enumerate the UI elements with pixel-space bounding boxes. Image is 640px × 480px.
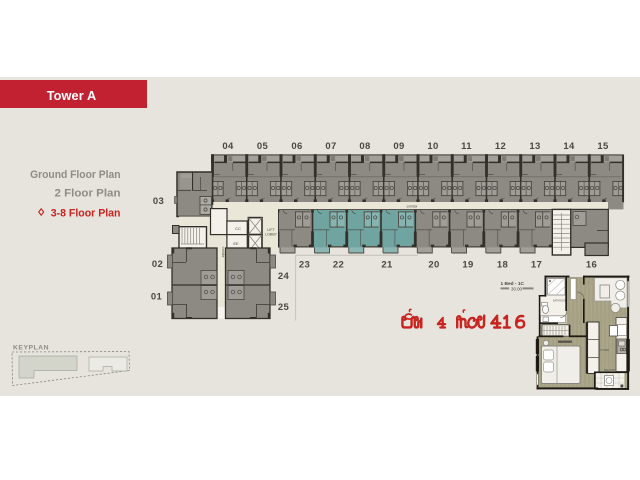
svg-text:Ground Floor Plan: Ground Floor Plan: [30, 169, 121, 181]
svg-text:08: 08: [359, 141, 370, 152]
svg-text:06: 06: [291, 141, 302, 152]
svg-text:2 Floor Plan: 2 Floor Plan: [55, 187, 121, 199]
svg-text:15: 15: [597, 141, 609, 152]
svg-text:3-8 Floor Plan: 3-8 Floor Plan: [51, 207, 121, 219]
svg-text:01: 01: [151, 292, 163, 303]
svg-text:21: 21: [381, 259, 393, 270]
svg-text:09: 09: [393, 141, 404, 152]
svg-text:02: 02: [152, 259, 163, 270]
svg-text:KEYPLAN: KEYPLAN: [13, 345, 49, 352]
svg-text:LOBBY: LOBBY: [265, 233, 278, 237]
svg-text:corridor: corridor: [407, 205, 419, 209]
svg-text:04: 04: [222, 141, 234, 152]
svg-text:LIFT: LIFT: [267, 228, 275, 232]
svg-text:11: 11: [461, 141, 472, 152]
svg-text:16: 16: [586, 259, 597, 270]
svg-text:17: 17: [531, 259, 542, 270]
svg-text:18: 18: [497, 259, 508, 270]
svg-text:KITCHEN: KITCHEN: [599, 349, 610, 352]
svg-text:22: 22: [333, 259, 344, 270]
svg-text:25: 25: [278, 302, 290, 313]
svg-text:12: 12: [495, 141, 506, 152]
svg-text:24: 24: [278, 271, 290, 282]
svg-text:07: 07: [325, 141, 336, 152]
svg-text:10: 10: [427, 141, 438, 152]
svg-text:19: 19: [462, 259, 473, 270]
svg-text:20: 20: [428, 259, 439, 270]
svg-text:05: 05: [257, 141, 269, 152]
svg-text:23: 23: [299, 259, 310, 270]
svg-text:03: 03: [153, 196, 164, 207]
svg-text:13: 13: [529, 141, 540, 152]
svg-text:14: 14: [563, 141, 575, 152]
svg-text:Tower A: Tower A: [47, 88, 97, 103]
svg-text:30.00: 30.00: [511, 286, 523, 291]
svg-text:corridor: corridor: [221, 247, 225, 259]
svg-text:EE: EE: [233, 241, 239, 246]
svg-text:BATHROOM: BATHROOM: [553, 300, 567, 303]
svg-text:CC: CC: [235, 226, 241, 231]
